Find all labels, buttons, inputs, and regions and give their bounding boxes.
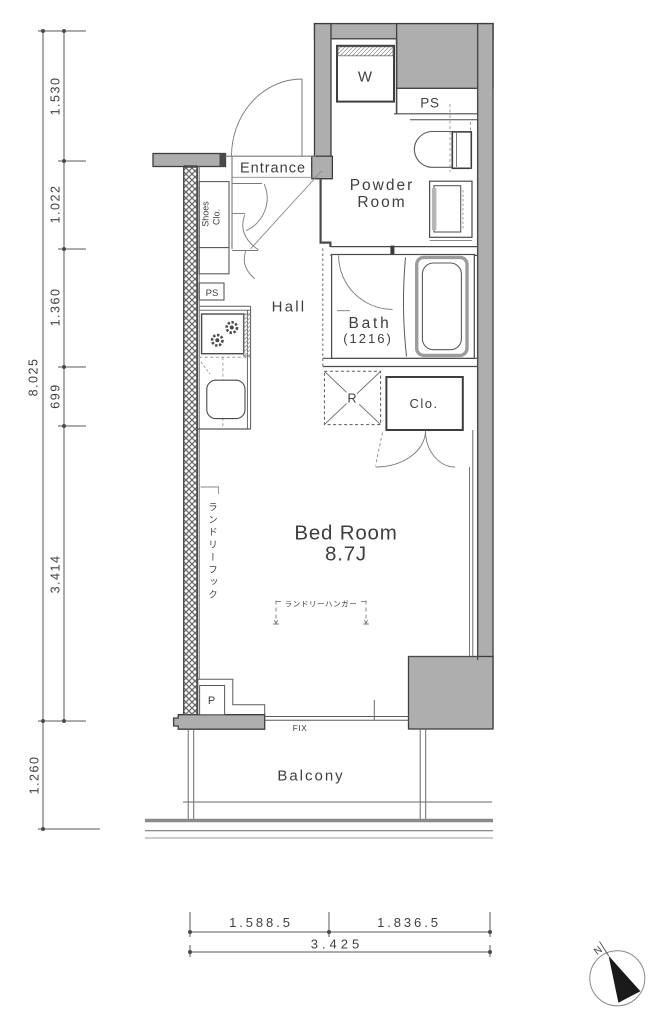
svg-text:P: P — [208, 695, 215, 707]
svg-text:Room: Room — [357, 194, 406, 211]
svg-text:3.425: 3.425 — [311, 937, 364, 952]
svg-text:PS: PS — [420, 96, 440, 111]
svg-text:FIX: FIX — [293, 723, 308, 733]
svg-text:1.836.5: 1.836.5 — [377, 915, 441, 930]
svg-text:PS: PS — [206, 288, 219, 299]
svg-text:Entrance: Entrance — [240, 160, 306, 176]
svg-text:Clo.: Clo. — [212, 209, 222, 225]
svg-text:1.360: 1.360 — [48, 288, 62, 327]
svg-text:Balcony: Balcony — [277, 768, 344, 785]
svg-text:1.022: 1.022 — [48, 185, 62, 224]
svg-text:ランドリーハンガー: ランドリーハンガー — [285, 599, 358, 609]
svg-text:Bath: Bath — [348, 315, 391, 332]
svg-text:1.260: 1.260 — [27, 756, 41, 795]
svg-text:8.025: 8.025 — [26, 358, 40, 397]
svg-text:W: W — [358, 69, 373, 86]
svg-text:Clo.: Clo. — [409, 396, 438, 411]
svg-text:Hall: Hall — [272, 299, 307, 316]
svg-text:ランドリーフック: ランドリーフック — [206, 502, 217, 602]
svg-text:1.588.5: 1.588.5 — [229, 915, 293, 930]
svg-text:Shoes: Shoes — [201, 201, 211, 227]
svg-text:8.7J: 8.7J — [325, 543, 367, 566]
svg-text:3.414: 3.414 — [48, 555, 62, 594]
svg-text:699: 699 — [48, 383, 62, 408]
svg-text:R: R — [347, 392, 356, 406]
svg-text:Bed Room: Bed Room — [294, 522, 397, 545]
svg-text:1.530: 1.530 — [48, 77, 62, 116]
svg-text:(1216): (1216) — [343, 331, 393, 346]
svg-text:Powder: Powder — [350, 177, 415, 194]
